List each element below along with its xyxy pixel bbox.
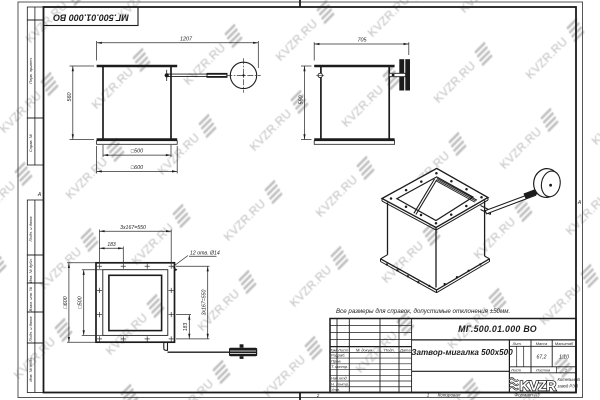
svg-text:Инв. № подл.: Инв. № подл. [28,357,33,382]
svg-text:Н. контр.: Н. контр. [331,381,349,386]
svg-text:560: 560 [67,93,73,102]
svg-text:□600: □600 [63,296,69,308]
svg-text:1: 1 [565,368,567,373]
svg-text:Нач.отд: Нач.отд [331,376,348,381]
svg-text:Формат А3: Формат А3 [514,393,540,398]
svg-text:□500: □500 [131,149,143,155]
svg-text:Все размеры для справок, допус: Все размеры для справок, допустимые откл… [336,308,510,315]
svg-text:завод РЭП: завод РЭП [557,384,578,389]
svg-text:Котельный: Котельный [558,377,581,382]
svg-text:12 отв. Ø14: 12 отв. Ø14 [190,251,220,257]
svg-text:А: А [37,192,42,198]
svg-text:Взам. инв. №: Взам. инв. № [28,286,33,311]
svg-text:3х167=550: 3х167=550 [202,289,208,315]
svg-text:560: 560 [299,96,305,105]
svg-text:Перв. примен.: Перв. примен. [28,57,33,84]
svg-text:3х167=550: 3х167=550 [120,225,146,231]
svg-text:Масса: Масса [536,341,548,346]
svg-text:□600: □600 [131,165,143,171]
svg-text:Копировал: Копировал [438,393,461,398]
svg-text:1: 1 [427,393,430,398]
svg-text:Масштаб: Масштаб [555,341,574,346]
svg-text:Т. контр.: Т. контр. [331,364,348,369]
svg-text:183: 183 [107,242,116,248]
svg-text:1:10: 1:10 [559,355,569,361]
svg-text:Подп. и дата: Подп. и дата [28,216,33,242]
svg-text:□500: □500 [78,296,84,308]
svg-text:МГ.500.01.000 ВО: МГ.500.01.000 ВО [53,13,129,23]
svg-text:Листов: Листов [535,368,550,373]
svg-text:Пров.: Пров. [331,358,342,363]
svg-text:МГ.500.01.000 ВО: МГ.500.01.000 ВО [458,324,537,334]
svg-text:Дата: Дата [399,348,411,353]
svg-text:705: 705 [358,38,368,44]
svg-text:Справ. №: Справ. № [28,133,33,152]
svg-text:Подп.: Подп. [384,348,395,353]
svg-text:Лит.: Лит. [512,341,522,346]
svg-text:Инв. № дубл.: Инв. № дубл. [28,258,33,283]
svg-text:67,2: 67,2 [536,355,546,361]
svg-text:Лист: Лист [510,368,522,373]
svg-text:А: А [577,200,582,206]
svg-text:№ докум.: № докум. [356,348,374,353]
svg-text:1207: 1207 [180,36,193,42]
svg-text:Затвор-мигалка 500х500: Затвор-мигалка 500х500 [411,348,513,357]
svg-text:Разраб.: Разраб. [331,353,345,358]
svg-text:Утв.: Утв. [331,387,340,392]
svg-text:Подп. и дата: Подп. и дата [28,316,33,342]
svg-text:183: 183 [183,323,189,332]
